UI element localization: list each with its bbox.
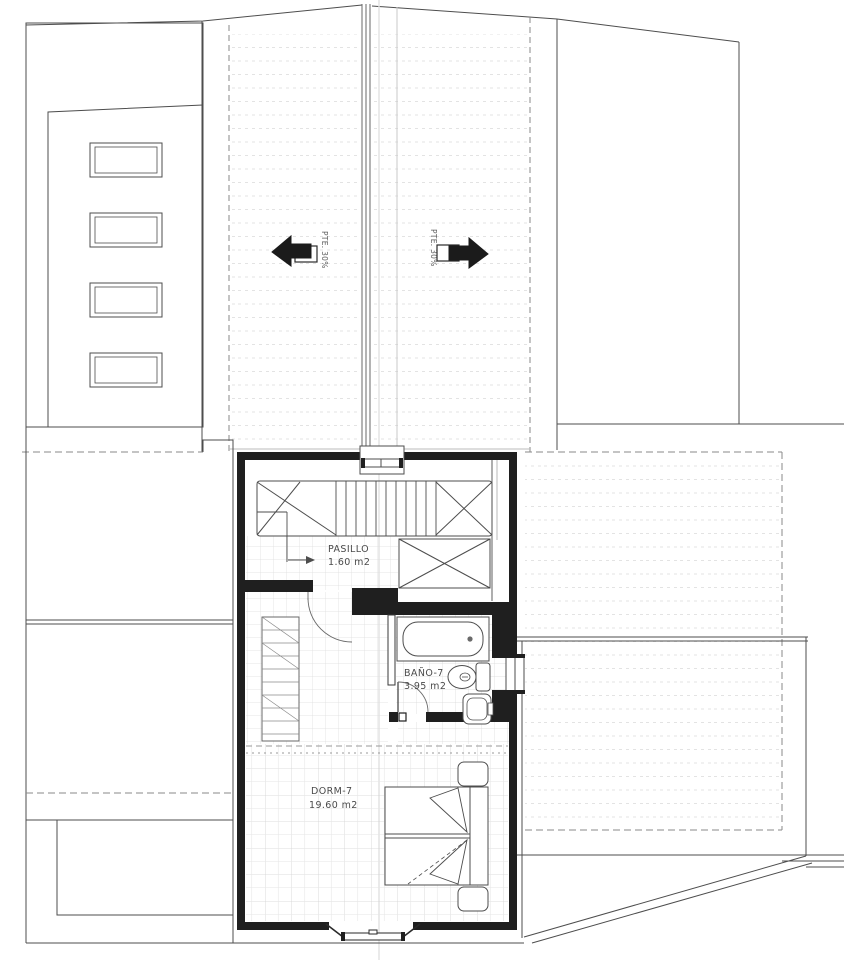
stair-treads	[336, 481, 436, 536]
window-bay-top	[360, 446, 404, 474]
nightstand-bottom-icon	[458, 887, 488, 911]
floor-plan: PASILLO 1.60 m2 BAÑO-7 3.95 m2 DORM-7 19…	[237, 446, 525, 941]
skylight-panel	[26, 23, 203, 427]
skylight-3	[90, 283, 162, 317]
floorplan-sheet: PTE. 30% PTE. 30%	[0, 0, 844, 960]
sink-icon	[463, 694, 493, 724]
roof-hatch-left-plane	[232, 34, 360, 448]
wall-top-left-seg	[237, 452, 362, 460]
toilet-icon	[448, 663, 490, 691]
wall-bottom-left-seg	[237, 922, 329, 930]
floorplan-drawing: PTE. 30% PTE. 30%	[0, 0, 844, 960]
area-pasillo: 1.60 m2	[328, 557, 370, 568]
window-bay-bottom	[326, 924, 420, 941]
wall-bath-north	[396, 602, 509, 615]
bathroom-window	[505, 654, 525, 694]
skylight-2	[90, 213, 162, 247]
stair-diagonal-left	[257, 482, 336, 535]
label-bano: BAÑO-7	[404, 668, 444, 679]
slope-label-left: PTE. 30%	[320, 231, 329, 269]
roof-diagonal-edge-1	[524, 856, 806, 937]
roof-diagonal-edge-2	[532, 863, 812, 943]
wall-pasillo-bath	[352, 588, 398, 615]
roof-right-block	[557, 19, 844, 450]
label-pasillo: PASILLO	[328, 544, 369, 555]
ridge-line	[362, 4, 370, 452]
closet	[262, 617, 299, 741]
area-bano: 3.95 m2	[404, 681, 446, 692]
wall-left	[237, 452, 245, 930]
radiator-icon	[389, 712, 406, 722]
label-dorm: DORM-7	[311, 786, 352, 797]
stair-diagonal-left2	[257, 482, 300, 535]
wall-bottom-right-seg	[413, 922, 517, 930]
bed-icon	[385, 787, 488, 885]
wall-top-right-seg	[402, 452, 517, 460]
wall-pasillo-south	[245, 580, 313, 592]
skylight-1	[90, 143, 162, 177]
slope-label-right: PTE. 30%	[429, 229, 438, 267]
site-lines-right	[517, 452, 844, 943]
stair-void-box	[399, 539, 490, 588]
roof-hatch-right-plane	[372, 34, 528, 448]
skylight-4	[90, 353, 162, 387]
bathroom-floor-strip	[398, 722, 509, 744]
bathtub-icon	[397, 617, 489, 661]
roof-top-edge-left	[26, 5, 362, 25]
area-dorm: 19.60 m2	[309, 800, 358, 811]
nightstand-top-icon	[458, 762, 488, 786]
wall-bath-east-upper	[492, 615, 509, 658]
